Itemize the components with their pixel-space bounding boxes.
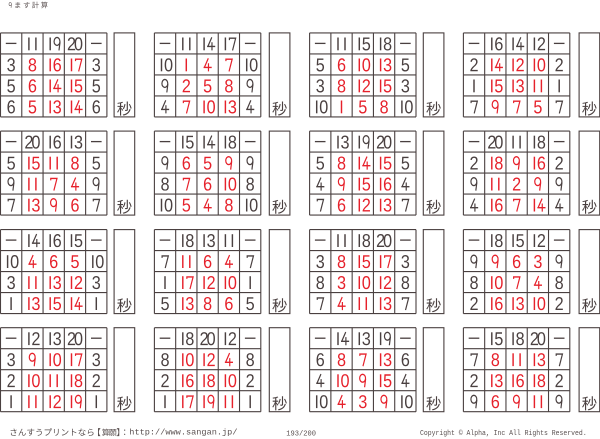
- svg-text:193/200: 193/200: [286, 431, 316, 439]
- svg-text:Copyright © Alpha, Inc All Rig: Copyright © Alpha, Inc All Rights Reserv…: [420, 429, 587, 438]
- svg-text:http://www.sangan.jp/: http://www.sangan.jp/: [129, 429, 237, 438]
